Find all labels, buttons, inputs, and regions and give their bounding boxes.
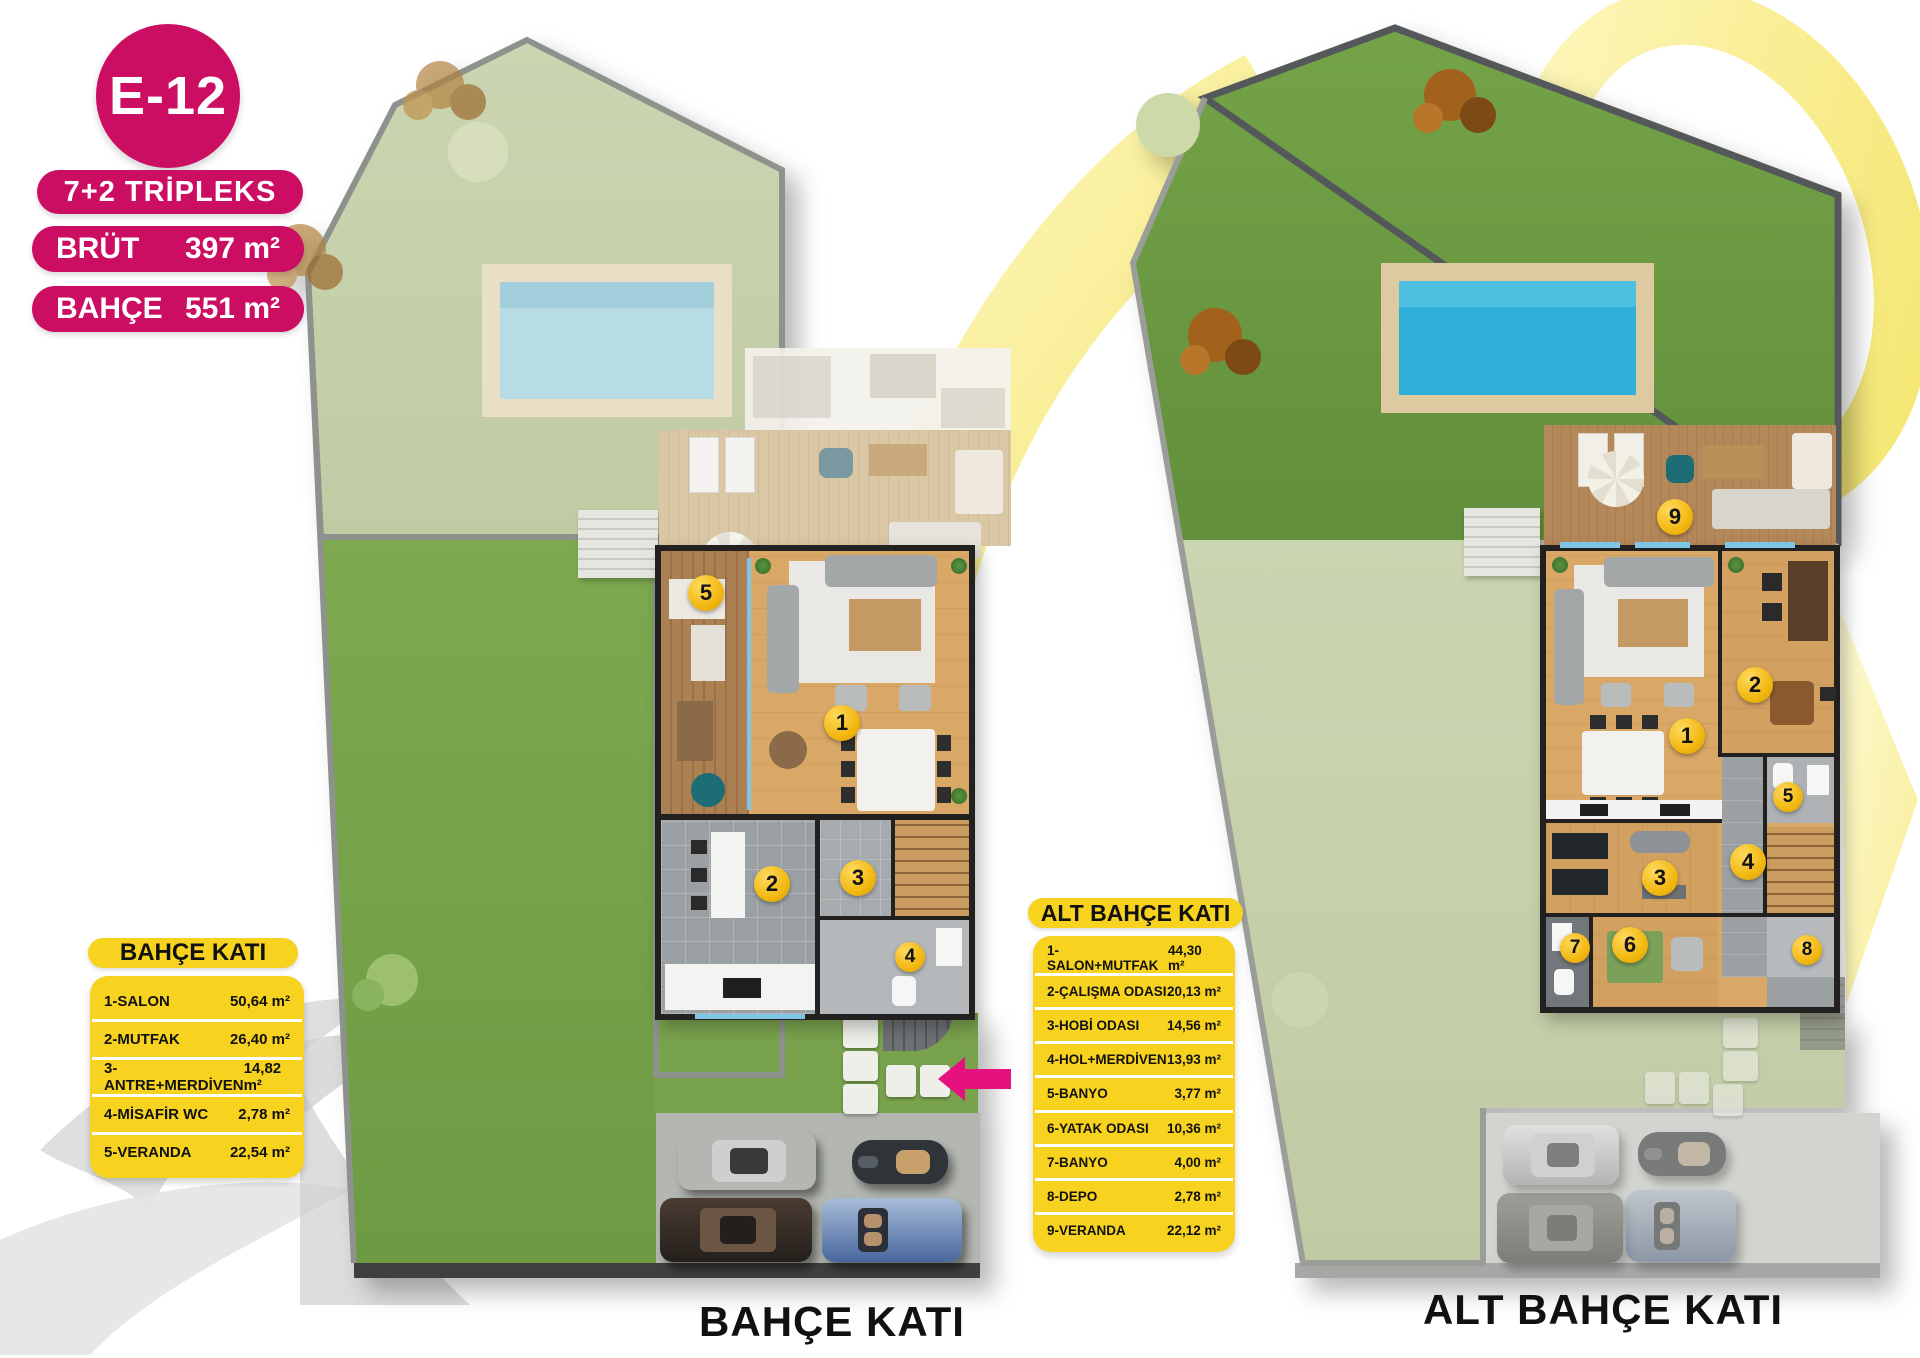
furniture (691, 625, 725, 681)
room-area: 13,93 m² (1167, 1052, 1221, 1067)
left-upper-terrace-faded (745, 348, 1011, 432)
room-name: 4-HOL+MERDİVEN (1047, 1052, 1167, 1067)
coffee-table (849, 599, 921, 651)
scooter (1638, 1132, 1726, 1176)
sink (1807, 765, 1829, 795)
left-plan-caption: BAHÇE KATI (650, 1298, 1014, 1346)
window-strip (1725, 542, 1795, 548)
room-area: 50,64 m² (230, 993, 290, 1010)
marker-banyo-7: 7 (1560, 933, 1590, 963)
armchair (1601, 683, 1631, 707)
room-name: 8-DEPO (1047, 1189, 1097, 1204)
room-area: 2,78 m² (238, 1106, 290, 1123)
left-terrace-deck (659, 430, 1011, 546)
dining-table (857, 729, 935, 811)
left-bottom-wall (354, 1263, 980, 1278)
outdoor-bed (1792, 433, 1832, 489)
wall (1722, 753, 1834, 757)
sink (936, 928, 962, 966)
legend-row: 1-SALON+MUTFAK 44,30 m² (1035, 942, 1233, 976)
stair-landing (1767, 977, 1834, 1007)
legend-row: 5-BANYO 3,77 m² (1035, 1078, 1233, 1112)
room-name: 5-BANYO (1047, 1086, 1108, 1101)
desk (1788, 561, 1828, 641)
wall (820, 916, 969, 920)
right-garden-steps (1464, 508, 1540, 576)
gym-bench (1552, 869, 1608, 895)
room-calisma-odasi (1722, 551, 1834, 757)
armchair (899, 685, 931, 711)
room-name: 4-MİSAFİR WC (104, 1106, 208, 1123)
legend-row: 1-SALON 50,64 m² (92, 984, 302, 1022)
room-name: 1-SALON (104, 993, 170, 1010)
window-strip (1635, 542, 1690, 548)
room-name: 2-MUTFAK (104, 1031, 180, 1048)
stepping-stone (843, 1018, 878, 1048)
armchair (1664, 683, 1694, 707)
room-area: 26,40 m² (230, 1031, 290, 1048)
room-name: 2-ÇALIŞMA ODASI (1047, 984, 1167, 999)
stairs (895, 820, 969, 920)
stepping-stone (1645, 1072, 1675, 1104)
room-hobi-odasi (1546, 823, 1718, 917)
sink (1660, 804, 1690, 816)
room-area: 3,77 m² (1174, 1086, 1221, 1101)
car-sedan (1503, 1125, 1619, 1185)
marker-veranda: 5 (688, 575, 724, 611)
stepping-stone (1723, 1018, 1758, 1048)
cooktop (723, 978, 761, 998)
chair (691, 896, 707, 910)
marker-misafir-wc: 4 (895, 942, 925, 972)
pointer-arrow-head (938, 1057, 965, 1101)
marker-mutfak: 2 (754, 866, 790, 902)
chair (1590, 715, 1606, 729)
room-salon (749, 551, 969, 817)
bahce-value: 551 m² (185, 292, 280, 326)
kitchen-island (711, 832, 745, 918)
legend-row: 3-HOBİ ODASI 14,56 m² (1035, 1010, 1233, 1044)
car-sports (822, 1198, 962, 1262)
right-legend: 1-SALON+MUTFAK 44,30 m² 2-ÇALIŞMA ODASI … (1033, 936, 1235, 1252)
brut-pill: BRÜT 397 m² (32, 226, 304, 272)
legend-row: 4-HOL+MERDİVEN 13,93 m² (1035, 1044, 1233, 1078)
legend-row: 9-VERANDA 22,12 m² (1035, 1215, 1233, 1246)
chair (937, 735, 951, 751)
room-area: 22,12 m² (1167, 1223, 1221, 1238)
furniture (869, 444, 927, 476)
room-area: 4,00 m² (1174, 1155, 1221, 1170)
scooter (852, 1140, 948, 1184)
wall (1546, 819, 1722, 823)
legend-row: 5-VERANDA 22,54 m² (92, 1135, 302, 1170)
chair (691, 868, 707, 882)
car-sedan (678, 1132, 816, 1190)
legend-row: 7-BANYO 4,00 m² (1035, 1147, 1233, 1181)
plant (951, 788, 967, 804)
plant (951, 558, 967, 574)
bahce-label: BAHÇE (56, 292, 163, 326)
sofa (767, 585, 799, 693)
chair (1820, 687, 1836, 701)
left-house-block (655, 348, 1011, 1020)
left-garden-lower (320, 537, 656, 1263)
unit-type-pill: 7+2 TRİPLEKS (37, 170, 303, 214)
sun-lounger (725, 437, 755, 493)
car-sports (1626, 1190, 1736, 1262)
toilet (892, 976, 916, 1006)
legend-row: 6-YATAK ODASI 10,36 m² (1035, 1113, 1233, 1147)
chair (937, 761, 951, 777)
marker-antre: 3 (840, 860, 876, 896)
marker-calisma-odasi: 2 (1737, 667, 1773, 703)
armchair (1671, 937, 1703, 971)
legend-row: 4-MİSAFİR WC 2,78 m² (92, 1097, 302, 1135)
marker-hobi-odasi: 3 (1642, 860, 1678, 896)
wall (1718, 551, 1722, 757)
sofa (825, 555, 937, 587)
chair (937, 787, 951, 803)
legend-row: 2-MUTFAK 26,40 m² (92, 1022, 302, 1060)
room-area: 14,56 m² (1167, 1018, 1221, 1033)
right-plan-caption: ALT BAHÇE KATI (1398, 1286, 1808, 1334)
gym-equipment (1630, 831, 1690, 853)
left-legend-title-text: BAHÇE KATI (120, 939, 266, 967)
daybed (1702, 445, 1764, 479)
sofa (1604, 557, 1714, 587)
outdoor-bed (955, 450, 1003, 514)
chair (1762, 603, 1782, 621)
room-yatak-odasi (1593, 917, 1718, 1007)
sun-lounger (689, 437, 719, 493)
marker-salon-mutfak: 1 (1669, 718, 1705, 754)
cooktop (1580, 804, 1608, 816)
right-terrace-deck (1544, 425, 1836, 545)
toilet (1554, 969, 1574, 995)
furniture (941, 388, 1005, 428)
floorplan-poster: 1 2 3 4 5 1 2 3 4 5 6 7 8 9 E-12 7+2 TRİ… (0, 0, 1920, 1358)
stepping-stone (886, 1065, 916, 1097)
plant (755, 558, 771, 574)
room-salon-mutfak (1546, 551, 1722, 820)
armchair (1666, 455, 1694, 483)
chair (841, 761, 855, 777)
left-garden-steps (578, 510, 658, 578)
chair (841, 787, 855, 803)
wall (1763, 757, 1767, 917)
brut-value: 397 m² (185, 232, 280, 266)
stepping-stone (843, 1051, 878, 1081)
table (1770, 681, 1814, 725)
room-misafir-wc (820, 920, 969, 1014)
stairs (1767, 827, 1834, 917)
room-area: 10,36 m² (1167, 1121, 1221, 1136)
legend-row: 2-ÇALIŞMA ODASI 20,13 m² (1035, 976, 1233, 1010)
room-area: 22,54 m² (230, 1144, 290, 1161)
unit-type-label: 7+2 TRİPLEKS (64, 176, 277, 209)
furniture (753, 356, 831, 418)
room-area: 20,13 m² (1167, 984, 1221, 999)
wall (1589, 917, 1593, 1007)
room-name: 9-VERANDA (1047, 1223, 1126, 1238)
room-area: 2,78 m² (1174, 1189, 1221, 1204)
window-strip (747, 558, 751, 810)
marker-salon: 1 (824, 705, 860, 741)
car-suv (1497, 1193, 1623, 1263)
marker-yatak-odasi: 6 (1612, 927, 1648, 963)
room-name: 7-BANYO (1047, 1155, 1108, 1170)
stepping-stone (1723, 1051, 1758, 1081)
parasol (1588, 451, 1644, 507)
car-suv (660, 1198, 812, 1262)
furniture (819, 448, 853, 478)
right-legend-title-text: ALT BAHÇE KATI (1041, 900, 1231, 927)
room-name: 1-SALON+MUTFAK (1047, 943, 1168, 973)
armchair (691, 773, 725, 807)
legend-row: 3-ANTRE+MERDİVEN 14,82 m² (92, 1060, 302, 1098)
legend-row: 8-DEPO 2,78 m² (1035, 1181, 1233, 1215)
stepping-stone (843, 1084, 878, 1114)
sofa (1554, 589, 1584, 705)
marker-veranda-9: 9 (1657, 499, 1693, 535)
room-name: 3-ANTRE+MERDİVEN (104, 1060, 244, 1094)
gym-bench (1552, 833, 1608, 859)
plant (1728, 557, 1744, 573)
dining-table (1582, 731, 1664, 795)
marker-hol-merdiven: 4 (1730, 844, 1766, 880)
marker-depo: 8 (1792, 935, 1822, 965)
room-area: 44,30 m² (1168, 943, 1221, 973)
room-name: 3-HOBİ ODASI (1047, 1018, 1139, 1033)
chair (1762, 573, 1782, 591)
stepping-stone (1679, 1072, 1709, 1104)
outdoor-sofa (1712, 489, 1830, 529)
side-table (769, 731, 807, 769)
brut-label: BRÜT (56, 232, 139, 266)
chair (1616, 715, 1632, 729)
room-area: 14,82 m² (244, 1060, 290, 1094)
furniture (870, 354, 936, 398)
furniture (677, 701, 713, 761)
marker-banyo-5: 5 (1773, 782, 1803, 812)
wall (891, 820, 895, 920)
chair (1642, 715, 1658, 729)
bahce-pill: BAHÇE 551 m² (32, 286, 304, 332)
kitchen-counter (1546, 800, 1722, 820)
left-legend: 1-SALON 50,64 m² 2-MUTFAK 26,40 m² 3-ANT… (90, 976, 304, 1178)
chair (691, 840, 707, 854)
unit-badge: E-12 (96, 24, 240, 168)
room-name: 6-YATAK ODASI (1047, 1121, 1149, 1136)
window-strip (695, 1014, 805, 1019)
room-mutfak (661, 820, 820, 1014)
pointer-arrow (963, 1069, 1011, 1089)
window-strip (1560, 542, 1620, 548)
left-legend-title: BAHÇE KATI (88, 938, 298, 968)
coffee-table (1618, 599, 1688, 647)
plant (1552, 557, 1568, 573)
stepping-stone (1713, 1084, 1743, 1116)
right-legend-title: ALT BAHÇE KATI (1028, 898, 1243, 928)
room-name: 5-VERANDA (104, 1144, 192, 1161)
